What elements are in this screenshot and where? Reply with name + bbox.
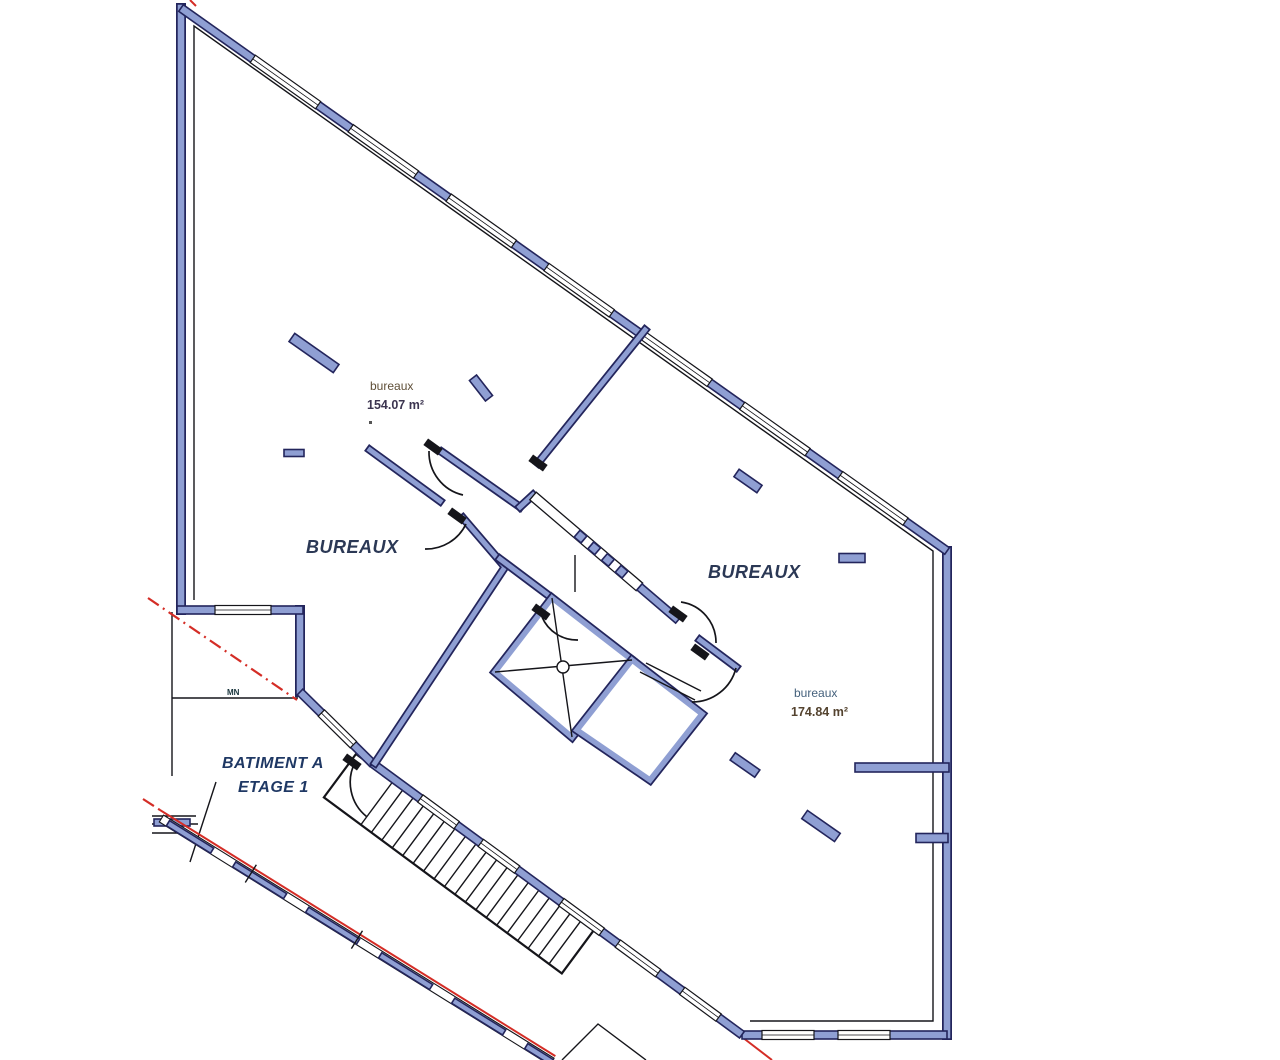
room-se-name: bureaux bbox=[794, 686, 837, 700]
boundary-red-dash-start bbox=[143, 799, 160, 810]
room-nw-area: 154.07 m² bbox=[367, 398, 424, 412]
room-se-area: 174.84 m² bbox=[791, 705, 848, 719]
boundary-red-lines bbox=[148, 0, 772, 1060]
east-partition-stub bbox=[855, 763, 949, 772]
facade-notch-top bbox=[177, 606, 303, 615]
facade-south-west bbox=[369, 759, 744, 1038]
building-title-line1: BATIMENT A bbox=[222, 755, 324, 772]
facade-north bbox=[178, 4, 949, 554]
door-arc-core-east-2 bbox=[692, 668, 736, 702]
room-nw-name: bureaux bbox=[370, 379, 413, 393]
room-east-name: BUREAUX bbox=[708, 562, 801, 582]
floor-plan-page: bureaux 154.07 m² BUREAUX BUREAUX bureau… bbox=[0, 0, 1280, 1060]
boundary-mark-label: MN bbox=[227, 688, 240, 697]
room-nw-dot bbox=[369, 421, 372, 424]
building-title-line2: ETAGE 1 bbox=[238, 779, 309, 796]
facade-south bbox=[742, 1031, 947, 1040]
door-arc-corridor-2 bbox=[425, 524, 466, 549]
site-facade-lower-left bbox=[151, 806, 558, 1060]
floor-plan-canvas: bureaux 154.07 m² BUREAUX BUREAUX bureau… bbox=[0, 0, 1280, 1060]
core-block bbox=[495, 598, 702, 780]
room-west-name: BUREAUX bbox=[306, 537, 399, 557]
